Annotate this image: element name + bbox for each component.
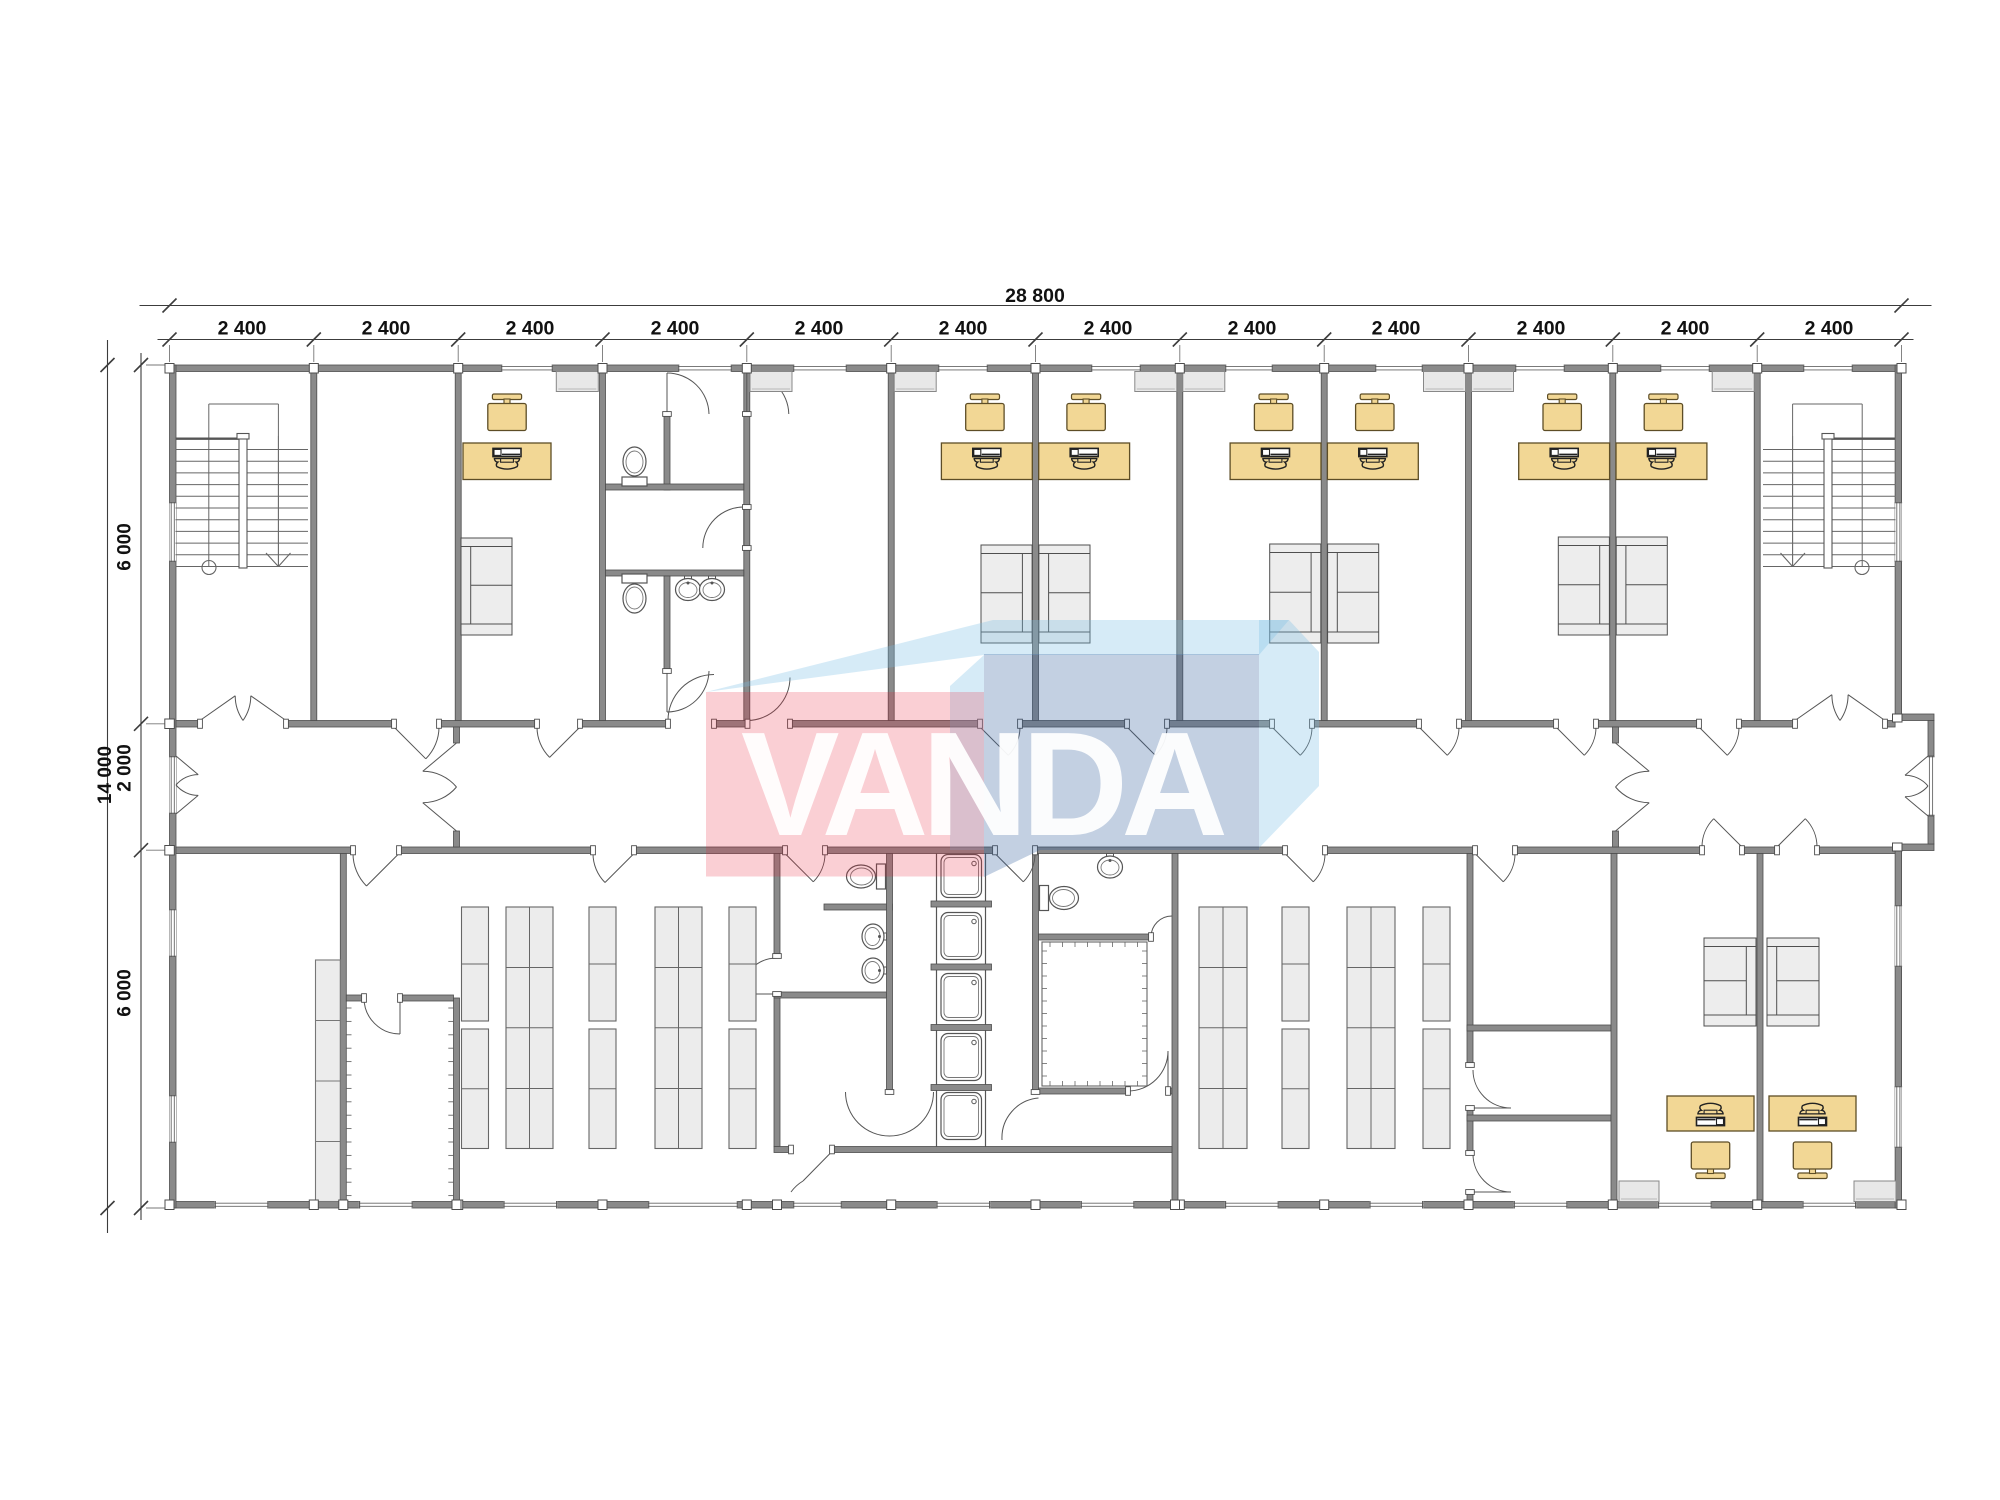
svg-text:2 400: 2 400 (651, 318, 700, 340)
svg-text:28 800: 28 800 (1005, 285, 1065, 307)
svg-text:6 000: 6 000 (115, 969, 136, 1017)
svg-text:2 400: 2 400 (218, 318, 267, 340)
svg-text:6 000: 6 000 (115, 523, 136, 571)
svg-text:2 400: 2 400 (1661, 318, 1710, 340)
svg-text:2 400: 2 400 (1228, 318, 1277, 340)
svg-text:2 000: 2 000 (115, 744, 136, 792)
svg-text:14 000: 14 000 (95, 746, 116, 804)
svg-text:2 400: 2 400 (362, 318, 411, 340)
svg-text:2 400: 2 400 (506, 318, 555, 340)
svg-text:2 400: 2 400 (939, 318, 988, 340)
svg-text:2 400: 2 400 (1805, 318, 1854, 340)
svg-text:2 400: 2 400 (1084, 318, 1133, 340)
svg-text:2 400: 2 400 (795, 318, 844, 340)
svg-text:2 400: 2 400 (1517, 318, 1566, 340)
svg-text:2 400: 2 400 (1372, 318, 1421, 340)
svg-text:VANDA: VANDA (741, 702, 1224, 867)
